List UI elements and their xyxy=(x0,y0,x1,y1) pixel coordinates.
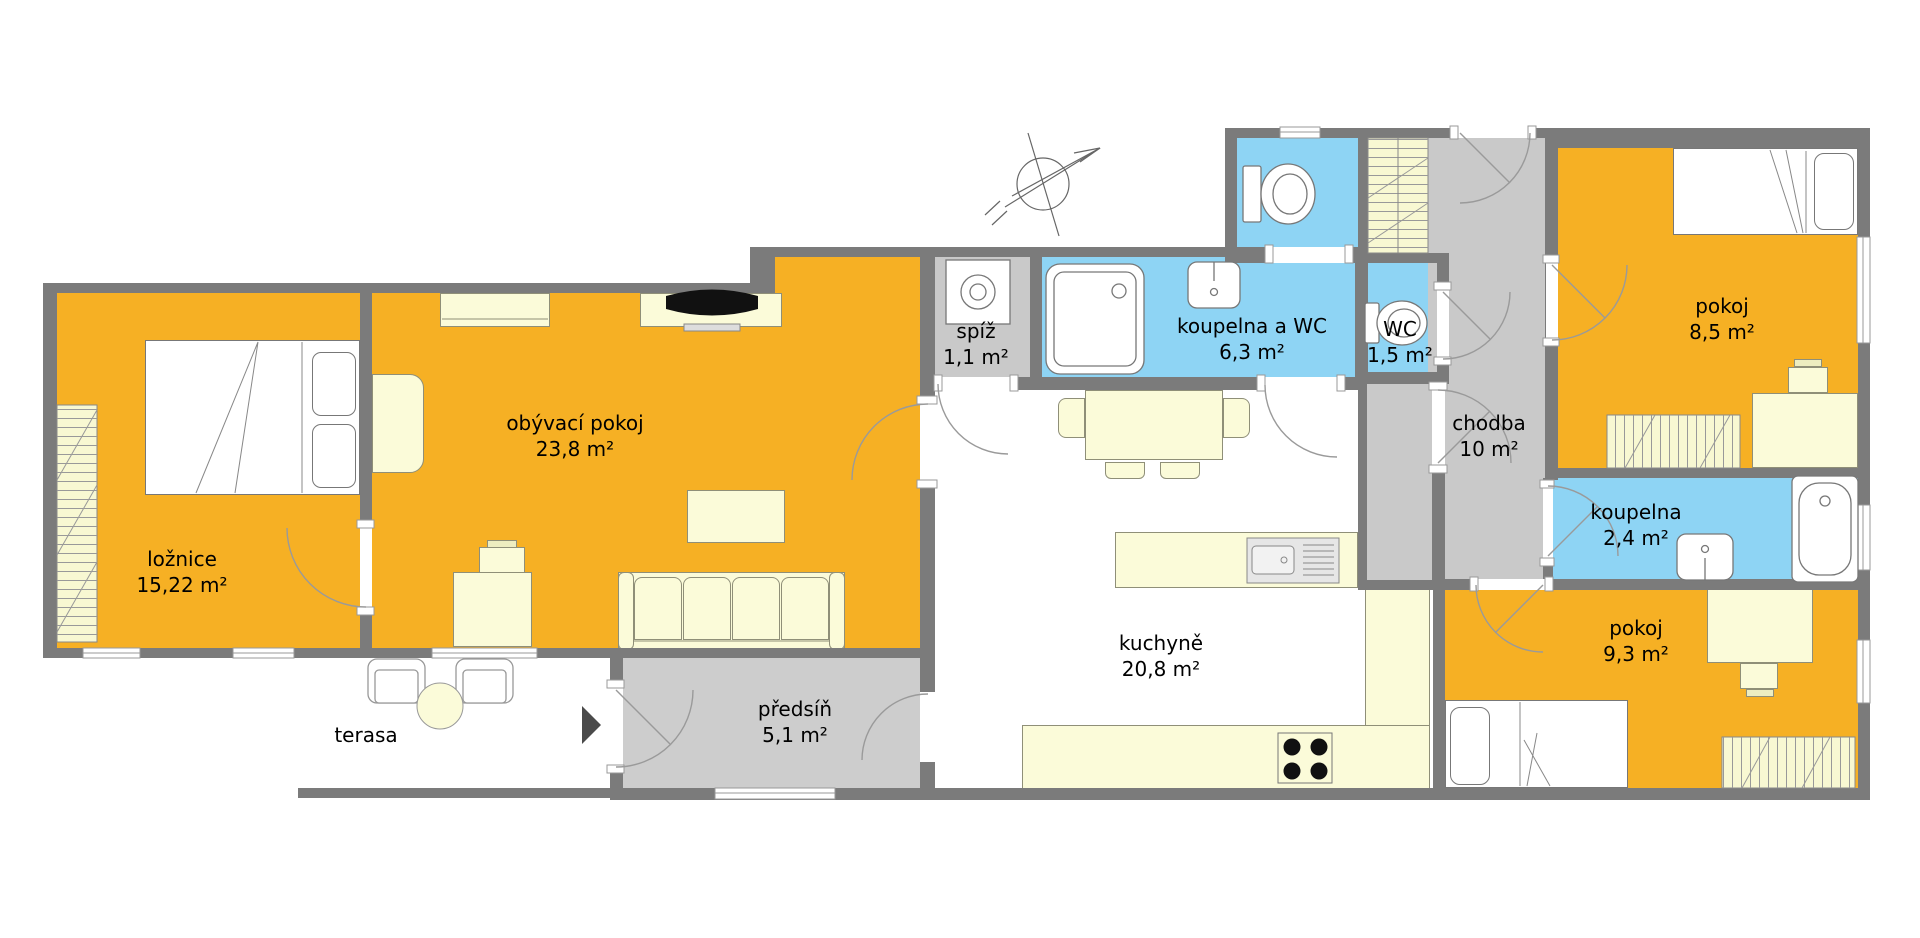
room-area: 15,22 m² xyxy=(62,572,302,598)
room-label-predsin: předsíň 5,1 m² xyxy=(675,696,915,748)
compass-icon xyxy=(985,133,1100,236)
room-label-koupelna-24: koupelna 2,4 m² xyxy=(1516,499,1756,551)
room-area: 20,8 m² xyxy=(1041,656,1281,682)
furniture-lines xyxy=(442,319,829,641)
wardrobe xyxy=(57,138,1855,788)
room-label-chodba: chodba 10 m² xyxy=(1399,410,1579,462)
floor-plan: ložnice 15,22 m² obývací pokoj 23,8 m² s… xyxy=(0,0,1920,938)
washing-machine-icon xyxy=(946,260,1010,324)
plan-details xyxy=(0,0,1920,938)
room-name: ložnice xyxy=(62,546,302,572)
kitchen-sink-icon xyxy=(1247,538,1339,583)
room-area: 5,1 m² xyxy=(675,722,915,748)
room-name: pokoj xyxy=(1602,293,1842,319)
bathtub-icon xyxy=(1792,476,1858,582)
room-name: předsíň xyxy=(675,696,915,722)
room-area: 23,8 m² xyxy=(455,436,695,462)
window xyxy=(83,127,1870,799)
sink-icon xyxy=(1188,262,1240,308)
room-name: chodba xyxy=(1399,410,1579,436)
room-area: 9,3 m² xyxy=(1516,641,1756,667)
room-name: obývací pokoj xyxy=(455,410,695,436)
room-name: WC xyxy=(1340,316,1460,342)
room-area: 2,4 m² xyxy=(1516,525,1756,551)
room-name: kuchyně xyxy=(1041,630,1281,656)
room-name: terasa xyxy=(276,722,456,748)
stove-icon xyxy=(1278,733,1332,783)
room-name: koupelna xyxy=(1516,499,1756,525)
room-label-wc: WC 1,5 m² xyxy=(1340,316,1460,368)
tv-icon xyxy=(666,290,758,332)
room-label-pokoj-93: pokoj 9,3 m² xyxy=(1516,615,1756,667)
room-name: spíž xyxy=(916,318,1036,344)
room-name: pokoj xyxy=(1516,615,1756,641)
room-label-kuchyne: kuchyně 20,8 m² xyxy=(1041,630,1281,682)
room-area: 10 m² xyxy=(1399,436,1579,462)
room-label-pokoj-85: pokoj 8,5 m² xyxy=(1602,293,1842,345)
room-area: 8,5 m² xyxy=(1602,319,1842,345)
room-label-spiz: spíž 1,1 m² xyxy=(916,318,1036,370)
room-area: 1,5 m² xyxy=(1340,342,1460,368)
toilet-icon xyxy=(1243,164,1315,224)
room-label-obyvaci-pokoj: obývací pokoj 23,8 m² xyxy=(455,410,695,462)
entrance-arrow-icon xyxy=(582,706,601,744)
room-area: 1,1 m² xyxy=(916,344,1036,370)
room-label-loznice: ložnice 15,22 m² xyxy=(62,546,302,598)
room-label-terasa: terasa xyxy=(276,722,456,748)
